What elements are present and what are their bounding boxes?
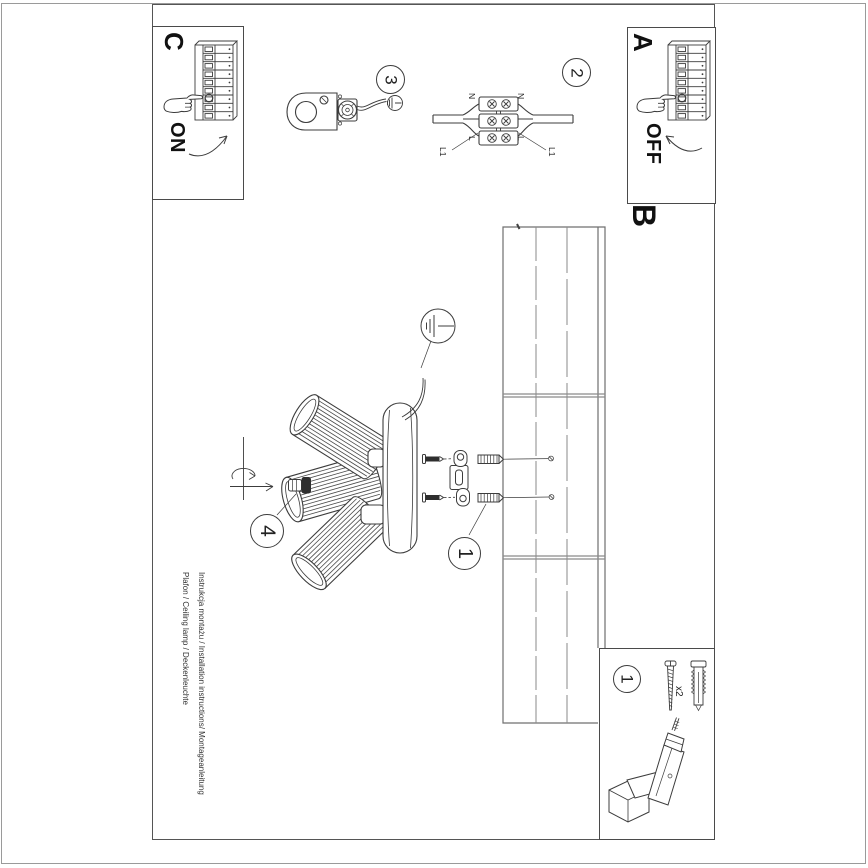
step-3-badge: 3 [376, 65, 405, 94]
step-1-badge: 1 [448, 537, 481, 570]
step1-leader [469, 504, 486, 535]
wire-label-l1-right: L1 [547, 147, 557, 157]
footer-text: Instrukcja montażu / Installation instru… [178, 572, 209, 832]
quantity-label: x2 [673, 686, 684, 697]
main-art: N N L L L1 L1 [0, 0, 868, 868]
footer-line-2: Plafon / Ceiling lamp / Deckenleuchte [178, 572, 194, 832]
manual-page: { "colors": { "ink": "#3c3c3c", "frame":… [0, 0, 868, 868]
panel-a-art [628, 28, 713, 201]
mounting-bracket [450, 451, 470, 507]
wire-label-l-left: L [467, 136, 477, 141]
section-b-label: B [625, 204, 662, 227]
switch-on-arrow-icon [189, 136, 227, 156]
breaker-panel-icon [668, 41, 710, 120]
footer-line-1: Instrukcja montażu / Installation instru… [194, 572, 210, 832]
earth-symbol-large [421, 309, 455, 368]
drill-icon [609, 718, 684, 823]
parts-step-badge: 1 [613, 665, 641, 693]
lamp-assembly-drawing [230, 309, 554, 595]
mounting-hardware [423, 451, 554, 536]
wire-label-n-left: N [467, 93, 477, 99]
wire-label-l1-left: L1 [438, 147, 448, 157]
earth-symbol-small [388, 96, 403, 111]
wire-label-l-right: L [516, 136, 526, 141]
wall-plug-icon [691, 661, 706, 711]
step-4-number: 4 [255, 525, 279, 537]
wire-label-n-right: N [516, 93, 526, 99]
parts-step-number: 1 [617, 674, 637, 683]
rotation-arrow [230, 437, 273, 500]
step-3-number: 3 [381, 75, 401, 84]
step-4-badge: 4 [250, 514, 284, 548]
adjustment-bolt [289, 477, 312, 494]
wiring-diagram [433, 97, 573, 150]
breaker-panel-icon [195, 41, 237, 120]
step-2-badge: 2 [562, 58, 591, 87]
panel-c-art [153, 27, 241, 197]
socket-part-drawing [287, 93, 403, 130]
shade-arm-lower [361, 505, 385, 524]
ceiling-panels-drawing [503, 224, 605, 723]
step-2-number: 2 [567, 68, 587, 77]
wall-anchor-lower [478, 494, 504, 503]
switch-off-arrow-icon [666, 136, 702, 151]
step-1-number: 1 [453, 548, 476, 559]
wall-anchor-upper [478, 455, 504, 464]
